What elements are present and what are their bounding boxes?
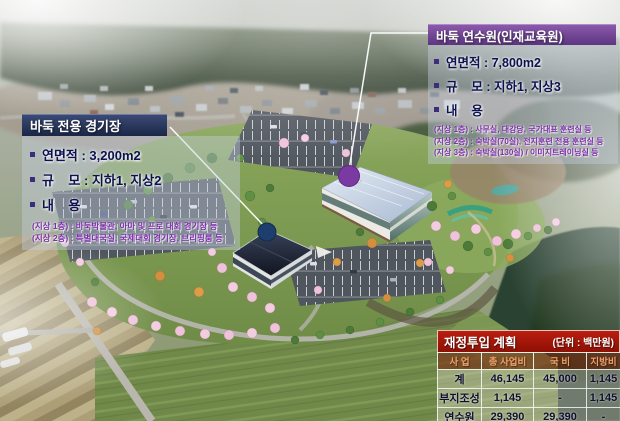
budget-table-unit: (단위 : 백만원) (552, 334, 614, 349)
table-cell: 45,000 (534, 370, 587, 389)
header-national-fund: 국 비 (534, 353, 587, 370)
stadium-scale: 규 모 : 지하1, 지상2 (30, 170, 233, 189)
center-detail-floor3: (지상 3층) : 숙박실(130실) / 이미지트레이닝실 등 (434, 147, 614, 159)
stadium-floor-area: 연면적 : 3,200m2 (30, 145, 233, 164)
table-cell: 1,145 (587, 370, 620, 389)
bullet-square-icon (30, 152, 35, 157)
bullet-square-icon (30, 177, 35, 182)
bullet-square-icon (434, 83, 439, 88)
callout-training-center-title: 바둑 연수원(인재교육원) (428, 24, 616, 45)
callout-training-center: 바둑 연수원(인재교육원) 연면적 : 7,800m2 규 모 : 지하1, 지… (428, 24, 618, 164)
callout-training-center-panel: 연면적 : 7,800m2 규 모 : 지하1, 지상3 내 용 (지상 1층)… (428, 45, 618, 164)
center-detail-floor1: (지상 1층) : 사무실, 대강당, 국가대표 훈련실 등 (434, 124, 614, 136)
table-cell: 계 (438, 370, 482, 389)
bullet-square-icon (434, 59, 439, 64)
center-floor-area: 연면적 : 7,800m2 (434, 52, 614, 71)
table-row-land: 부지조성 1,145 - 1,145 (438, 389, 620, 408)
table-row-total: 계 46,145 45,000 1,145 (438, 370, 620, 389)
budget-table: 재정투입 계획 (단위 : 백만원) 사 업 총 사업비 국 비 지방비 계 4… (437, 330, 620, 421)
table-row-center: 연수원 29,390 29,390 - (438, 408, 620, 421)
budget-table-titlebar: 재정투입 계획 (단위 : 백만원) (437, 330, 620, 352)
site-plan-slide: 바둑 전용 경기장 연면적 : 3,200m2 규 모 : 지하1, 지상2 내… (0, 0, 620, 421)
budget-header-row: 사 업 총 사업비 국 비 지방비 (438, 353, 620, 370)
table-cell: 부지조성 (438, 389, 482, 408)
stadium-contents: 내 용 (30, 195, 233, 214)
header-total-cost: 총 사업비 (482, 353, 534, 370)
stadium-detail-floor2: (지상 2층) : 특별대국실, 국제대회 경기장, 브리핑룸 등 (32, 232, 233, 244)
budget-table-title: 재정투입 계획 (444, 332, 516, 351)
center-scale: 규 모 : 지하1, 지상3 (434, 76, 614, 95)
table-cell: 46,145 (482, 370, 534, 389)
table-cell: - (587, 408, 620, 421)
center-contents: 내 용 (434, 100, 614, 119)
table-cell: 29,390 (534, 408, 587, 421)
header-project: 사 업 (438, 353, 482, 370)
bullet-square-icon (30, 202, 35, 207)
callout-stadium-panel: 연면적 : 3,200m2 규 모 : 지하1, 지상2 내 용 (지상 1층)… (22, 136, 240, 250)
budget-grid: 사 업 총 사업비 국 비 지방비 계 46,145 45,000 1,145 … (437, 352, 620, 421)
stadium-detail-floor1: (지상 1층) : 바둑박물관, 아마 및 프로 대회 경기장 등 (32, 220, 233, 232)
center-detail-floor2: (지상 2층) : 숙박실(70실), 전지훈련 전용 훈련실 등 (434, 136, 614, 148)
callout-stadium-title: 바둑 전용 경기장 (22, 114, 167, 136)
callout-stadium: 바둑 전용 경기장 연면적 : 3,200m2 규 모 : 지하1, 지상2 내… (22, 114, 240, 250)
bullet-square-icon (434, 107, 439, 112)
header-local-fund: 지방비 (587, 353, 620, 370)
table-cell: 연수원 (438, 408, 482, 421)
table-cell: - (534, 389, 587, 408)
table-cell: 1,145 (587, 389, 620, 408)
table-cell: 29,390 (482, 408, 534, 421)
table-cell: 1,145 (482, 389, 534, 408)
